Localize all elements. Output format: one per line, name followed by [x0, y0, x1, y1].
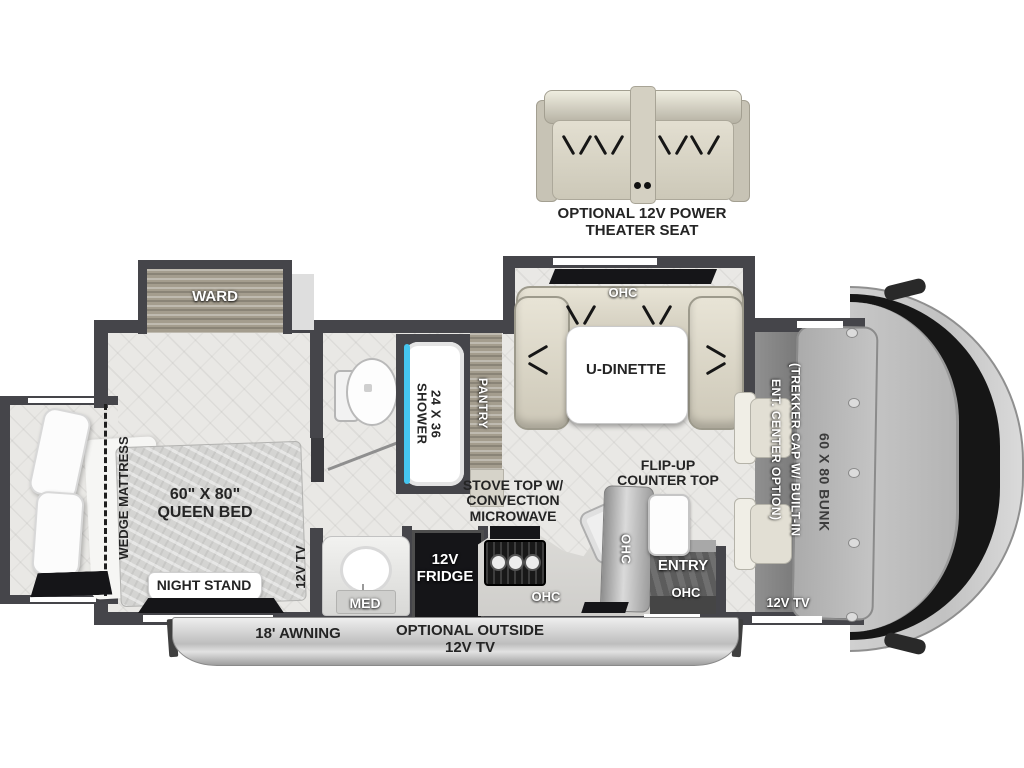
burner-icon	[507, 554, 524, 571]
kitchen-window-dark	[581, 602, 629, 613]
ohc-kitchen-label: OHC	[524, 590, 568, 604]
window	[28, 398, 94, 403]
queen-bed-label: 60" X 80"QUEEN BED	[140, 486, 270, 521]
stove-label: STOVE TOP W/CONVECTIONMICROWAVE	[448, 478, 578, 524]
bunk-label: 60 X 80 BUNK	[816, 392, 831, 572]
med-cabinet-label: MED	[330, 596, 400, 611]
window	[797, 321, 843, 328]
wall-entry-stub	[716, 546, 726, 616]
cab-tv-label: 12V TV	[756, 596, 820, 610]
rv-floorplan-canvas: OPTIONAL 12V POWERTHEATER SEAT WARD WEDG…	[0, 0, 1024, 768]
burner-icon	[490, 554, 507, 571]
ward-wall-left	[138, 260, 147, 334]
trekker-cap-label: (TREKKER CAP W/ BUILT-INENT. CENTER OPTI…	[766, 300, 804, 600]
theater-seat-cushion-right	[646, 120, 734, 200]
bedroom-window-dark	[138, 598, 284, 613]
bedroom-tv-label: 12V TV	[294, 532, 308, 602]
stove-vent	[490, 526, 540, 539]
shower-label: 24 X 36SHOWER	[414, 352, 443, 476]
pantry-label: PANTRY	[476, 344, 489, 462]
pillow	[31, 490, 85, 577]
cupholder-icon	[634, 182, 641, 189]
shower-glass	[404, 344, 410, 484]
theater-seat-graphic	[536, 86, 748, 206]
bath-door	[311, 438, 324, 482]
ward-slide-shadow	[292, 274, 314, 330]
ohc-entry-label: OHC	[664, 586, 708, 600]
ward-wall-top	[138, 260, 292, 269]
awning-label: 18' AWNING	[228, 626, 368, 643]
fridge-label: 12VFRIDGE	[412, 552, 478, 585]
ohc-cabinet-label: OHC	[618, 514, 632, 584]
flip-up-counter-label: FLIP-UPCOUNTER TOP	[608, 458, 728, 489]
ohc-dinette-label: OHC	[598, 286, 648, 300]
wall-left-upper	[94, 320, 108, 408]
window	[30, 597, 96, 602]
flip-up-counter	[648, 494, 690, 556]
dinette-ohc-cabinet	[549, 269, 717, 284]
entry-label: ENTRY	[650, 558, 716, 575]
wedge-mattress-divider	[104, 404, 107, 596]
wedge-mattress-label: WEDGE MATTRESS	[117, 433, 133, 563]
dinette-label: U-DINETTE	[566, 362, 686, 379]
toilet-flush-icon	[364, 384, 372, 392]
window	[752, 616, 822, 623]
night-stand-label: NIGHT STAND	[148, 578, 260, 593]
theater-seat-cushion-left	[552, 120, 640, 200]
burner-icon	[524, 554, 541, 571]
wall-bath-divider-upper	[310, 330, 323, 438]
window	[553, 258, 657, 265]
ward-label: WARD	[147, 289, 283, 306]
outside-tv-label: OPTIONAL OUTSIDE12V TV	[360, 623, 580, 656]
theater-seat-label: OPTIONAL 12V POWERTHEATER SEAT	[536, 206, 748, 239]
bath-sink	[340, 546, 392, 594]
bed-slide-wall-left	[0, 396, 10, 604]
cabover-bunk	[791, 325, 878, 620]
cupholder-icon	[644, 182, 651, 189]
ward-wall-right	[283, 260, 292, 334]
bedroom-rug	[30, 571, 113, 598]
toilet-bowl	[346, 358, 398, 426]
